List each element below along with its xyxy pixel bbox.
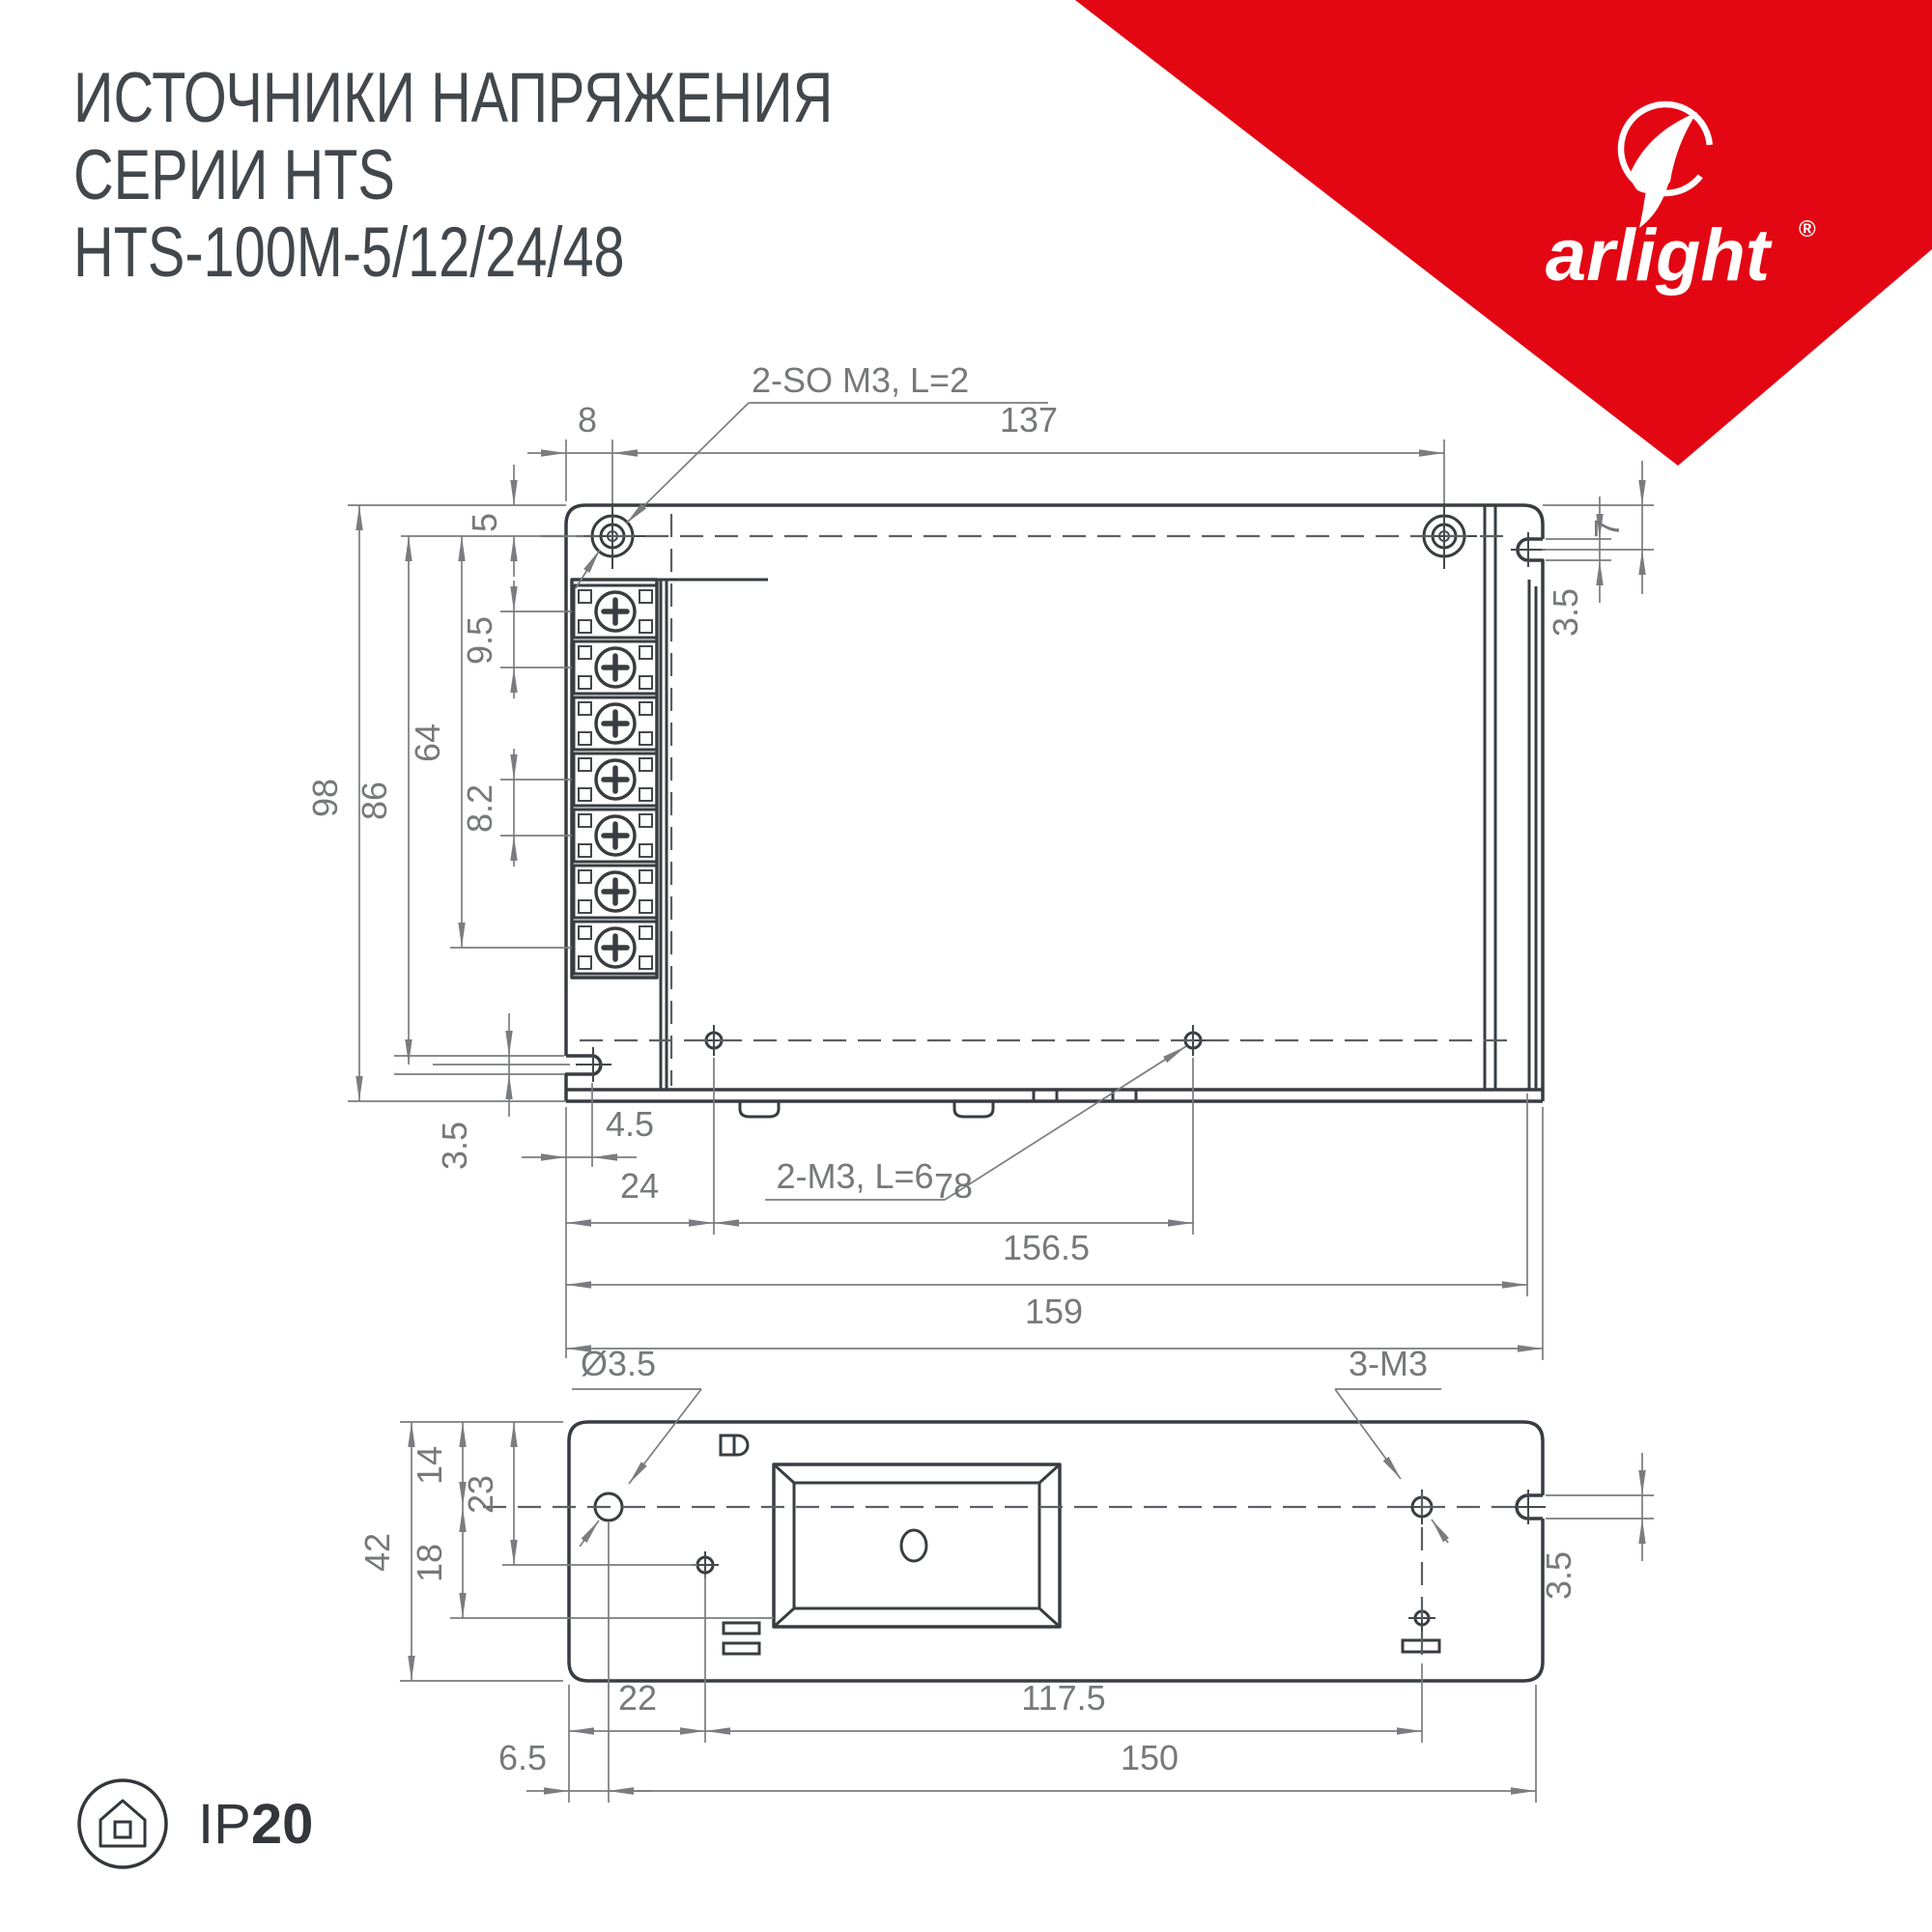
dim-5: 5 — [465, 513, 504, 532]
ip-prefix: IP — [198, 1793, 251, 1856]
dim-22: 22 — [618, 1678, 657, 1718]
dim-137: 137 — [1000, 400, 1058, 440]
top-view-outline — [566, 505, 1543, 1117]
dim-8-2: 8.2 — [460, 784, 499, 833]
dim-23: 23 — [461, 1475, 500, 1514]
bottom-view-outline — [569, 1422, 1543, 1681]
registered-mark: ® — [1799, 216, 1816, 242]
dim-18: 18 — [410, 1544, 449, 1582]
top-view-dimensions: 8 137 2-SO M3, L=2 5 98 86 64 9.5 8.2 7 … — [305, 360, 1654, 1360]
dim-9-5: 9.5 — [460, 616, 499, 665]
dim-156-5: 156.5 — [1003, 1228, 1090, 1267]
dim-150: 150 — [1121, 1738, 1179, 1777]
dim-8: 8 — [578, 400, 597, 440]
ip-badge: IP20 — [79, 1780, 313, 1867]
dim-159: 159 — [1025, 1292, 1083, 1331]
dim-98: 98 — [305, 779, 345, 817]
technical-drawing: arlight ® — [0, 0, 1932, 1932]
ip-rating-label: IP20 — [198, 1793, 313, 1856]
arlight-logo-text: arlight — [1546, 214, 1773, 297]
dim-6-5: 6.5 — [498, 1738, 547, 1777]
dim-3-5-bottom: 3.5 — [1539, 1551, 1578, 1600]
dim-7: 7 — [1587, 519, 1627, 538]
callout-2so-m3: 2-SO M3, L=2 — [752, 360, 969, 400]
top-view-centerlines — [541, 514, 1512, 1086]
dim-117-5: 117.5 — [1021, 1678, 1105, 1718]
brand-banner: arlight ® — [1075, 0, 1932, 466]
ip-value: 20 — [251, 1793, 314, 1856]
dim-14: 14 — [410, 1446, 449, 1485]
dim-64: 64 — [408, 724, 447, 762]
dim-24: 24 — [620, 1166, 659, 1206]
callout-3-m3: 3-M3 — [1349, 1344, 1428, 1383]
dim-42: 42 — [357, 1533, 397, 1572]
dim-4-5: 4.5 — [606, 1104, 654, 1144]
dim-86: 86 — [355, 781, 394, 820]
callout-2-m3: 2-M3, L=6 — [776, 1156, 933, 1196]
dim-3-5-right: 3.5 — [1546, 588, 1585, 637]
callout-hole-dia: Ø3.5 — [581, 1344, 656, 1383]
terminal-block — [574, 585, 657, 974]
bottom-view-dimensions: Ø3.5 3-M3 42 14 18 23 3.5 22 117.5 6.5 1… — [357, 1344, 1654, 1803]
house-icon — [100, 1801, 145, 1846]
bottom-view-holes — [595, 1490, 1546, 1632]
bottom-view-centerlines — [483, 1492, 1524, 1658]
dim-3-5-left: 3.5 — [435, 1122, 474, 1170]
top-view-holes — [576, 503, 1546, 1082]
badge-circle — [79, 1780, 166, 1867]
dim-78: 78 — [934, 1166, 973, 1206]
